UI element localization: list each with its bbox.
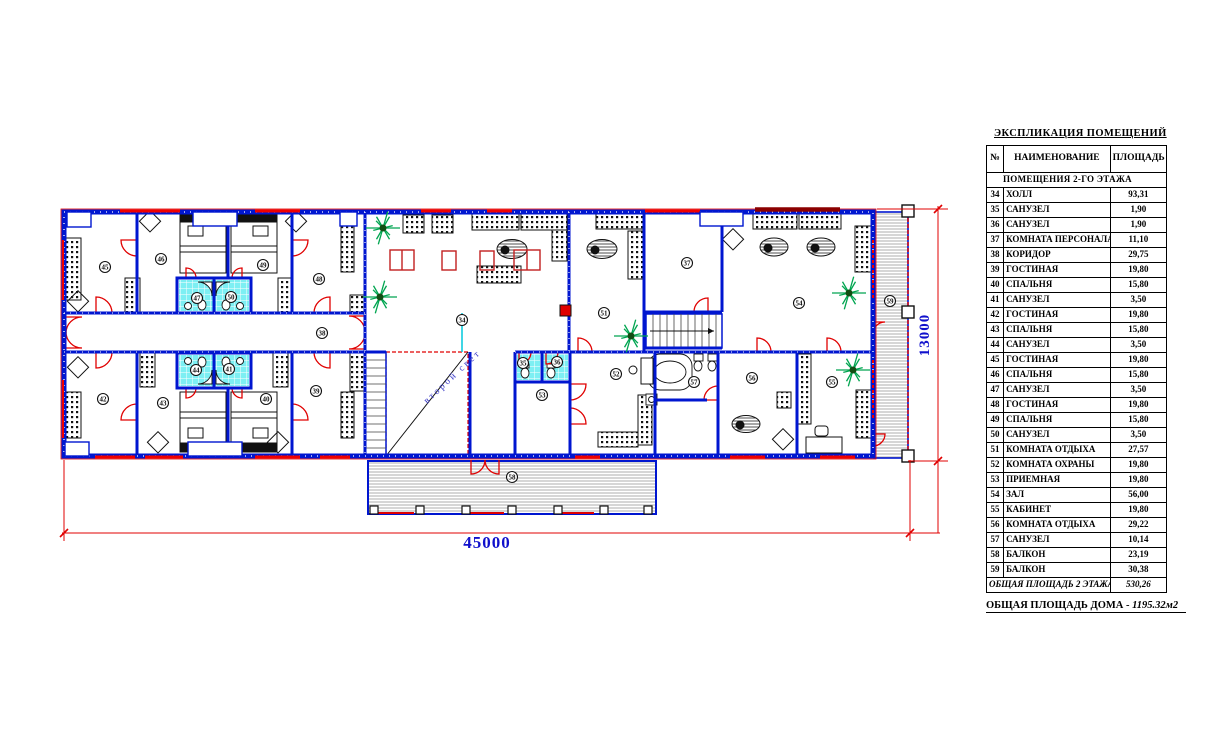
cell-num: 46 xyxy=(987,368,1004,383)
cell-area: 27,57 xyxy=(1110,443,1166,458)
svg-text:36: 36 xyxy=(554,359,562,367)
cell-area: 19,80 xyxy=(1110,353,1166,368)
svg-text:50: 50 xyxy=(228,294,236,302)
room-marker-39: 39 xyxy=(311,386,322,397)
schedule-row: 44САНУЗЕЛ3,50 xyxy=(987,338,1167,353)
cell-area: 15,80 xyxy=(1110,278,1166,293)
room-marker-38: 38 xyxy=(317,328,328,339)
cell-num: 36 xyxy=(987,218,1004,233)
svg-text:47: 47 xyxy=(194,295,202,303)
svg-text:49: 49 xyxy=(260,262,268,270)
cell-area: 19,80 xyxy=(1110,308,1166,323)
cell-num: 35 xyxy=(987,203,1004,218)
room-marker-57: 57 xyxy=(689,377,700,388)
cell-num: 48 xyxy=(987,398,1004,413)
cell-area: 30,38 xyxy=(1110,563,1166,578)
svg-text:44: 44 xyxy=(193,367,201,375)
svg-text:51: 51 xyxy=(601,310,609,318)
cell-num: 40 xyxy=(987,278,1004,293)
dim-height-label: 13000 xyxy=(917,314,933,357)
schedule-row: 56КОМНАТА ОТДЫХА29,22 xyxy=(987,518,1167,533)
bed xyxy=(231,213,277,273)
cell-name: ГОСТИНАЯ xyxy=(1004,263,1111,278)
room-marker-50: 50 xyxy=(226,292,237,303)
cell-name: БАЛКОН xyxy=(1004,563,1111,578)
plant-icon xyxy=(836,354,870,387)
room-marker-53: 53 xyxy=(537,390,548,401)
room-schedule: ЭКСПЛИКАЦИЯ ПОМЕЩЕНИЙ № НАИМЕНОВАНИЕ ПЛО… xyxy=(986,128,1186,613)
room-marker-37: 37 xyxy=(682,258,693,269)
cell-name: САНУЗЕЛ xyxy=(1004,428,1111,443)
cell-area: 19,80 xyxy=(1110,503,1166,518)
schedule-header-row: № НАИМЕНОВАНИЕ ПЛОЩАДЬ xyxy=(987,146,1167,173)
cell-name: КОМНАТА ОХРАНЫ xyxy=(1004,458,1111,473)
cell-num: 57 xyxy=(987,533,1004,548)
cell-num: 51 xyxy=(987,443,1004,458)
cell-name: КОМНАТА ОТДЫХА xyxy=(1004,443,1111,458)
schedule-section-row: ПОМЕЩЕНИЯ 2-ГО ЭТАЖА xyxy=(987,173,1167,188)
cell-name: ЗАЛ xyxy=(1004,488,1111,503)
cell-area: 10,14 xyxy=(1110,533,1166,548)
room-marker-45: 45 xyxy=(100,262,111,273)
svg-text:48: 48 xyxy=(316,276,324,284)
schedule-row: 57САНУЗЕЛ10,14 xyxy=(987,533,1167,548)
note-value: 1195.32м2 xyxy=(1132,600,1178,611)
cell-num: 58 xyxy=(987,548,1004,563)
room-marker-41: 41 xyxy=(224,364,235,375)
cell-name: СПАЛЬНЯ xyxy=(1004,323,1111,338)
total-value: 530,26 xyxy=(1110,578,1166,593)
cell-name: КАБИНЕТ xyxy=(1004,503,1111,518)
svg-text:55: 55 xyxy=(829,379,837,387)
room-marker-51: 51 xyxy=(599,308,610,319)
cell-name: САНУЗЕЛ xyxy=(1004,293,1111,308)
cell-name: ГОСТИНАЯ xyxy=(1004,353,1111,368)
plant-icon xyxy=(832,277,866,310)
cell-area: 15,80 xyxy=(1110,413,1166,428)
cell-num: 55 xyxy=(987,503,1004,518)
room-marker-47: 47 xyxy=(192,293,203,304)
cell-name: КОМНАТА ОТДЫХА xyxy=(1004,518,1111,533)
total-label: ОБЩАЯ ПЛОЩАДЬ 2 ЭТАЖА xyxy=(987,578,1111,593)
room-marker-35: 35 xyxy=(518,358,529,369)
col-header-name: НАИМЕНОВАНИЕ xyxy=(1004,146,1111,173)
cell-num: 44 xyxy=(987,338,1004,353)
schedule-row: 48ГОСТИНАЯ19,80 xyxy=(987,398,1167,413)
schedule-row: 59БАЛКОН30,38 xyxy=(987,563,1167,578)
cell-area: 19,80 xyxy=(1110,473,1166,488)
cell-num: 59 xyxy=(987,563,1004,578)
cell-name: КОМНАТА ПЕРСОНАЛА xyxy=(1004,233,1111,248)
cell-name: САНУЗЕЛ xyxy=(1004,203,1111,218)
cell-name: БАЛКОН xyxy=(1004,548,1111,563)
room-marker-59: 59 xyxy=(885,296,896,307)
cell-num: 39 xyxy=(987,263,1004,278)
room-marker-48: 48 xyxy=(314,274,325,285)
note-label: ОБЩАЯ ПЛОЩАДЬ ДОМА - xyxy=(986,600,1130,611)
cell-area: 93,31 xyxy=(1110,188,1166,203)
svg-text:56: 56 xyxy=(749,375,757,383)
staircase-right xyxy=(646,314,722,348)
room-marker-46: 46 xyxy=(156,254,167,265)
schedule-row: 45ГОСТИНАЯ19,80 xyxy=(987,353,1167,368)
room-marker-55: 55 xyxy=(827,377,838,388)
schedule-row: 55КАБИНЕТ19,80 xyxy=(987,503,1167,518)
svg-text:53: 53 xyxy=(539,392,547,400)
svg-text:52: 52 xyxy=(613,371,621,379)
cell-num: 41 xyxy=(987,293,1004,308)
cell-name: СПАЛЬНЯ xyxy=(1004,368,1111,383)
cell-num: 53 xyxy=(987,473,1004,488)
room-marker-43: 43 xyxy=(158,398,169,409)
schedule-row: 58БАЛКОН23,19 xyxy=(987,548,1167,563)
svg-text:54: 54 xyxy=(796,300,804,308)
cell-name: ПРИЕМНАЯ xyxy=(1004,473,1111,488)
cell-num: 47 xyxy=(987,383,1004,398)
cell-area: 56,00 xyxy=(1110,488,1166,503)
cell-num: 49 xyxy=(987,413,1004,428)
elevator-red-square xyxy=(560,305,571,316)
total-house-area-note: ОБЩАЯ ПЛОЩАДЬ ДОМА - 1195.32м2 xyxy=(986,600,1186,613)
cell-num: 50 xyxy=(987,428,1004,443)
svg-text:40: 40 xyxy=(263,396,271,404)
svg-text:43: 43 xyxy=(160,400,168,408)
balcony-right-59 xyxy=(874,205,914,462)
room-marker-54: 54 xyxy=(794,298,805,309)
svg-text:59: 59 xyxy=(887,298,895,306)
cell-area: 1,90 xyxy=(1110,203,1166,218)
cell-num: 34 xyxy=(987,188,1004,203)
schedule-row: 39ГОСТИНАЯ19,80 xyxy=(987,263,1167,278)
cell-area: 3,50 xyxy=(1110,338,1166,353)
cell-num: 52 xyxy=(987,458,1004,473)
schedule-table: № НАИМЕНОВАНИЕ ПЛОЩАДЬ ПОМЕЩЕНИЯ 2-ГО ЭТ… xyxy=(986,145,1167,593)
cell-area: 3,50 xyxy=(1110,383,1166,398)
cell-num: 43 xyxy=(987,323,1004,338)
room-marker-52: 52 xyxy=(611,369,622,380)
cell-name: САНУЗЕЛ xyxy=(1004,218,1111,233)
room-marker-44: 44 xyxy=(191,365,202,376)
schedule-row: 51КОМНАТА ОТДЫХА27,57 xyxy=(987,443,1167,458)
cell-num: 42 xyxy=(987,308,1004,323)
cell-name: СПАЛЬНЯ xyxy=(1004,413,1111,428)
cell-num: 37 xyxy=(987,233,1004,248)
cell-name: САНУЗЕЛ xyxy=(1004,533,1111,548)
svg-text:41: 41 xyxy=(226,366,234,374)
schedule-row: 36САНУЗЕЛ1,90 xyxy=(987,218,1167,233)
plant-icon xyxy=(366,212,400,245)
cell-name: КОРИДОР xyxy=(1004,248,1111,263)
cell-name: САНУЗЕЛ xyxy=(1004,383,1111,398)
schedule-row: 49СПАЛЬНЯ15,80 xyxy=(987,413,1167,428)
svg-text:35: 35 xyxy=(520,360,528,368)
cell-area: 29,22 xyxy=(1110,518,1166,533)
schedule-row: 38КОРИДОР29,75 xyxy=(987,248,1167,263)
cell-area: 3,50 xyxy=(1110,428,1166,443)
cell-area: 11,10 xyxy=(1110,233,1166,248)
cell-name: ГОСТИНАЯ xyxy=(1004,308,1111,323)
schedule-row: 34ХОЛЛ93,31 xyxy=(987,188,1167,203)
schedule-row: 46СПАЛЬНЯ15,80 xyxy=(987,368,1167,383)
cell-area: 1,90 xyxy=(1110,218,1166,233)
cell-name: ХОЛЛ xyxy=(1004,188,1111,203)
svg-text:38: 38 xyxy=(319,330,327,338)
schedule-title: ЭКСПЛИКАЦИЯ ПОМЕЩЕНИЙ xyxy=(994,128,1186,139)
svg-text:57: 57 xyxy=(691,379,699,387)
dim-width-label: 45000 xyxy=(463,533,511,552)
room-marker-49: 49 xyxy=(258,260,269,271)
schedule-row: 47САНУЗЕЛ3,50 xyxy=(987,383,1167,398)
cell-name: САНУЗЕЛ xyxy=(1004,338,1111,353)
schedule-row: 52КОМНАТА ОХРАНЫ19,80 xyxy=(987,458,1167,473)
schedule-row: 40СПАЛЬНЯ15,80 xyxy=(987,278,1167,293)
svg-text:46: 46 xyxy=(158,256,166,264)
svg-text:37: 37 xyxy=(684,260,692,268)
schedule-row: 35САНУЗЕЛ1,90 xyxy=(987,203,1167,218)
schedule-row: 37КОМНАТА ПЕРСОНАЛА11,10 xyxy=(987,233,1167,248)
cell-name: СПАЛЬНЯ xyxy=(1004,278,1111,293)
cell-area: 19,80 xyxy=(1110,398,1166,413)
schedule-row: 53ПРИЕМНАЯ19,80 xyxy=(987,473,1167,488)
schedule-row: 41САНУЗЕЛ3,50 xyxy=(987,293,1167,308)
svg-text:58: 58 xyxy=(509,474,517,482)
col-header-area: ПЛОЩАДЬ xyxy=(1110,146,1166,173)
schedule-row: 42ГОСТИНАЯ19,80 xyxy=(987,308,1167,323)
svg-text:34: 34 xyxy=(459,317,467,325)
svg-text:42: 42 xyxy=(100,396,108,404)
svg-text:39: 39 xyxy=(313,388,321,396)
room-marker-58: 58 xyxy=(507,472,518,483)
section-label: ПОМЕЩЕНИЯ 2-ГО ЭТАЖА xyxy=(987,173,1167,188)
room-marker-34: 34 xyxy=(457,315,468,326)
cell-name: ГОСТИНАЯ xyxy=(1004,398,1111,413)
cell-area: 15,80 xyxy=(1110,368,1166,383)
drawing-canvas: второй свет 45000 13000 3435363738394041… xyxy=(0,0,1224,754)
balcony-bottom-58 xyxy=(368,461,656,514)
cell-area: 23,19 xyxy=(1110,548,1166,563)
cell-num: 38 xyxy=(987,248,1004,263)
schedule-row: 54ЗАЛ56,00 xyxy=(987,488,1167,503)
schedule-row: 43СПАЛЬНЯ15,80 xyxy=(987,323,1167,338)
schedule-row: 50САНУЗЕЛ3,50 xyxy=(987,428,1167,443)
cell-area: 3,50 xyxy=(1110,293,1166,308)
room-marker-56: 56 xyxy=(747,373,758,384)
svg-text:45: 45 xyxy=(102,264,110,272)
cell-area: 29,75 xyxy=(1110,248,1166,263)
room-marker-36: 36 xyxy=(552,357,563,368)
staircase-void xyxy=(365,352,386,456)
room-marker-42: 42 xyxy=(98,394,109,405)
cell-num: 56 xyxy=(987,518,1004,533)
cell-num: 54 xyxy=(987,488,1004,503)
cell-area: 19,80 xyxy=(1110,458,1166,473)
cell-area: 15,80 xyxy=(1110,323,1166,338)
plant-icon xyxy=(363,281,397,314)
schedule-total-row: ОБЩАЯ ПЛОЩАДЬ 2 ЭТАЖА530,26 xyxy=(987,578,1167,593)
room-marker-40: 40 xyxy=(261,394,272,405)
cell-num: 45 xyxy=(987,353,1004,368)
col-header-num: № xyxy=(987,146,1004,173)
cell-area: 19,80 xyxy=(1110,263,1166,278)
